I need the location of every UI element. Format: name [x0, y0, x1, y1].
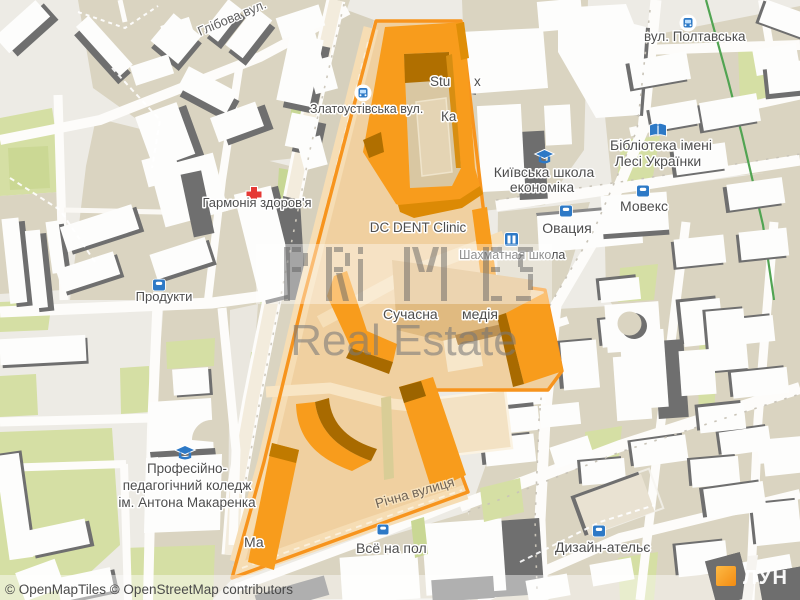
- svg-text:Ка: Ка: [441, 109, 457, 124]
- svg-text:Stu: Stu: [430, 74, 450, 89]
- svg-text:ЛУН: ЛУН: [743, 567, 788, 589]
- svg-text:ім. Антона Макаренка: ім. Антона Макаренка: [118, 495, 256, 510]
- svg-text:x: x: [474, 74, 481, 89]
- svg-text:Всё на пол: Всё на пол: [356, 540, 427, 556]
- svg-text:© OpenMapTiles © OpenStreetMap: © OpenMapTiles © OpenStreetMap contribut…: [5, 582, 293, 597]
- svg-text:Продукти: Продукти: [136, 289, 193, 304]
- svg-text:Київська школа: Київська школа: [494, 164, 595, 180]
- svg-text:Овация: Овация: [542, 220, 591, 236]
- svg-text:Ма: Ма: [244, 534, 264, 550]
- svg-text:економіка: економіка: [510, 179, 575, 195]
- svg-text:вул. Полтавська: вул. Полтавська: [644, 29, 746, 44]
- svg-text:Дизайн-ательє: Дизайн-ательє: [555, 539, 650, 555]
- svg-text:Real Estate: Real Estate: [290, 316, 517, 365]
- svg-text:Мовекс: Мовекс: [620, 198, 668, 214]
- svg-text:педагогічний коледж: педагогічний коледж: [123, 478, 252, 493]
- svg-text:Гармонія здоров'я: Гармонія здоров'я: [202, 195, 311, 210]
- svg-text:DC DENT Clinic: DC DENT Clinic: [370, 220, 467, 235]
- svg-text:Бібліотека імені: Бібліотека імені: [610, 137, 712, 153]
- svg-text:Професійно-: Професійно-: [147, 461, 227, 476]
- svg-text:Златоустівська вул.: Златоустівська вул.: [310, 102, 423, 116]
- svg-text:Лесі Українки: Лесі Українки: [615, 153, 702, 169]
